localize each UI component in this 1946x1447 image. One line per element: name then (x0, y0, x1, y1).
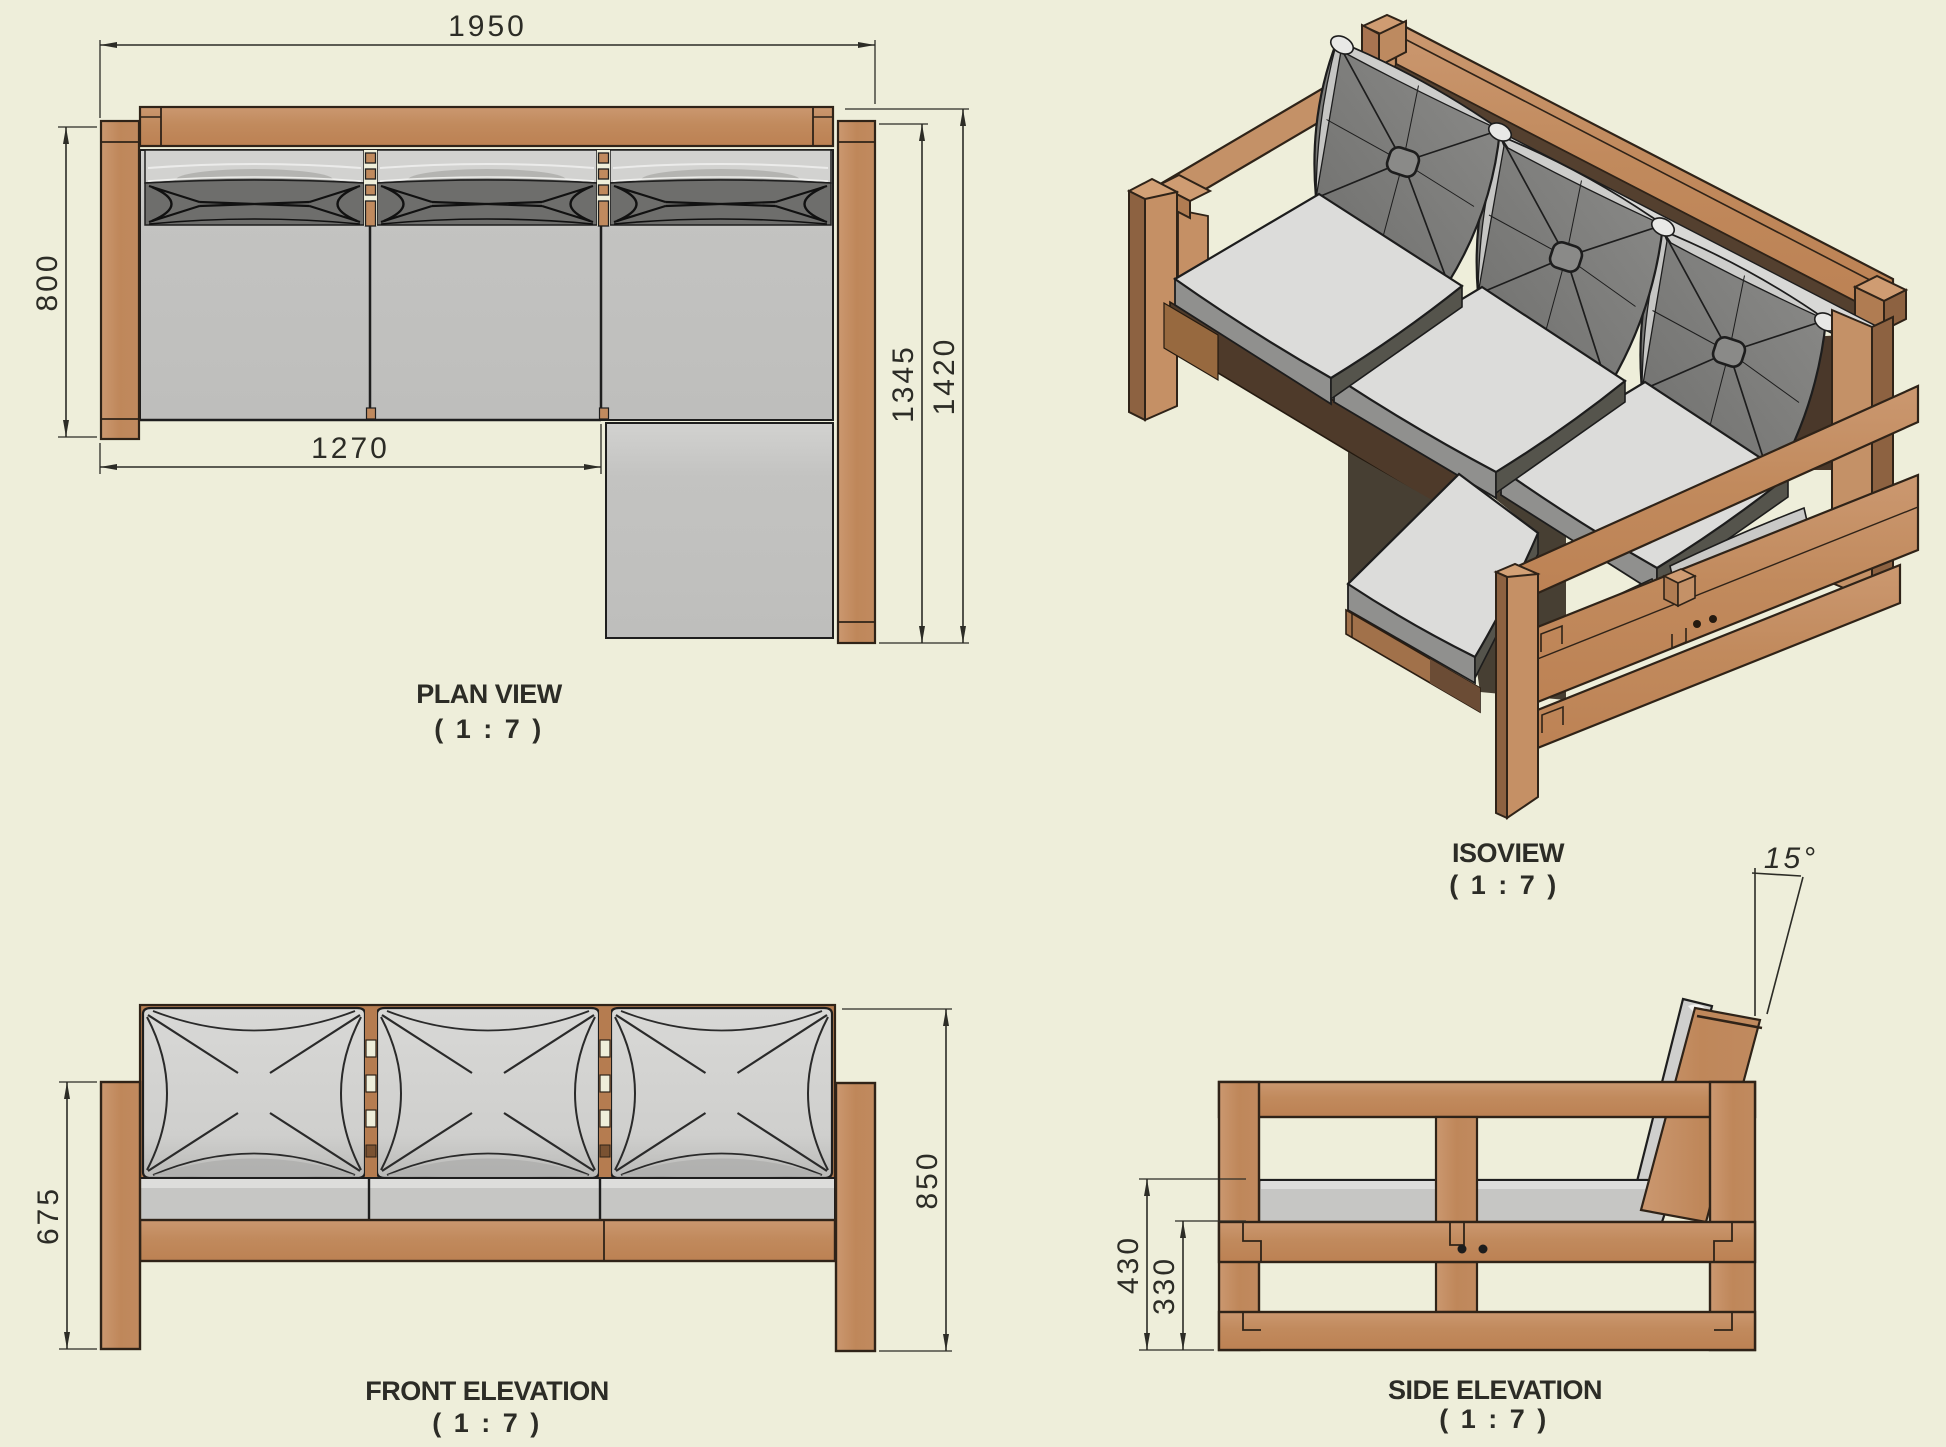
svg-text:430: 430 (1112, 1235, 1145, 1294)
svg-text:FRONT ELEVATION: FRONT ELEVATION (365, 1376, 609, 1406)
svg-text:( 1 : 7 ): ( 1 : 7 ) (434, 714, 544, 744)
svg-text:ISOVIEW: ISOVIEW (1452, 838, 1565, 868)
svg-text:330: 330 (1148, 1256, 1181, 1315)
svg-text:( 1 : 7 ): ( 1 : 7 ) (432, 1408, 542, 1438)
svg-text:15°: 15° (1764, 842, 1818, 875)
svg-text:1270: 1270 (311, 432, 390, 465)
svg-text:800: 800 (31, 252, 64, 311)
svg-text:850: 850 (911, 1150, 944, 1209)
svg-text:( 1 : 7 ): ( 1 : 7 ) (1439, 1404, 1549, 1434)
svg-text:1345: 1345 (887, 344, 920, 423)
svg-text:675: 675 (32, 1186, 65, 1245)
svg-text:1950: 1950 (448, 10, 527, 43)
svg-text:SIDE ELEVATION: SIDE ELEVATION (1388, 1375, 1602, 1405)
svg-text:PLAN VIEW: PLAN VIEW (416, 679, 563, 709)
svg-text:1420: 1420 (928, 337, 961, 416)
svg-text:( 1 : 7 ): ( 1 : 7 ) (1449, 870, 1559, 900)
